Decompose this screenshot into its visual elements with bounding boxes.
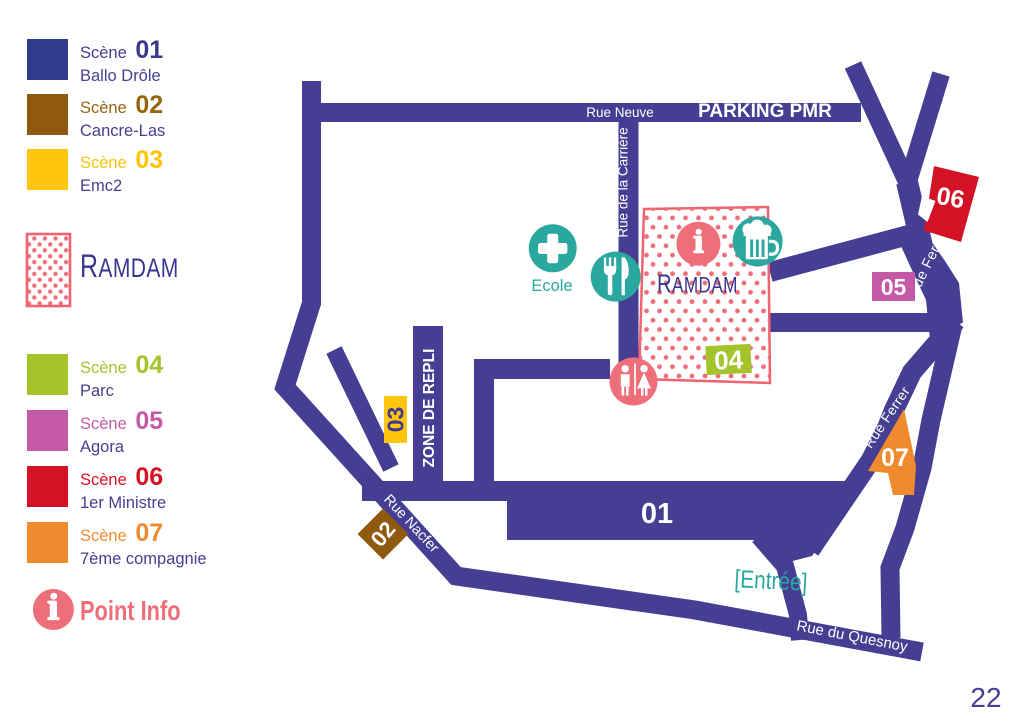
svg-text:03: 03 [383,407,409,433]
svg-text:05: 05 [881,274,907,300]
svg-text:Ecole: Ecole [531,277,572,295]
svg-text:22: 22 [970,682,1001,713]
svg-text:Cancre-Las: Cancre-Las [80,122,165,140]
svg-text:7ème compagnie: 7ème compagnie [80,550,207,568]
svg-text:Agora: Agora [80,438,125,456]
svg-text:RAMDAM: RAMDAM [657,269,738,298]
svg-text:1er Ministre: 1er Ministre [80,494,166,512]
svg-text:Parc: Parc [80,382,114,400]
svg-text:Emc2: Emc2 [80,177,122,195]
svg-text:Rue de la Carrière: Rue de la Carrière [616,127,631,237]
svg-text:RAMDAM: RAMDAM [80,249,179,285]
svg-text:Point Info: Point Info [80,595,181,626]
svg-text:Ballo Drôle: Ballo Drôle [80,67,161,85]
svg-text:01: 01 [641,498,673,530]
svg-text:[Entrée]: [Entrée] [734,565,808,597]
svg-text:ZONE DE REPLI: ZONE DE REPLI [421,349,438,468]
svg-text:04: 04 [713,344,744,376]
svg-text:07: 07 [881,444,909,472]
svg-text:PARKING PMR: PARKING PMR [698,101,832,122]
svg-text:Rue Neuve: Rue Neuve [586,105,654,120]
svg-text:06: 06 [934,182,966,214]
